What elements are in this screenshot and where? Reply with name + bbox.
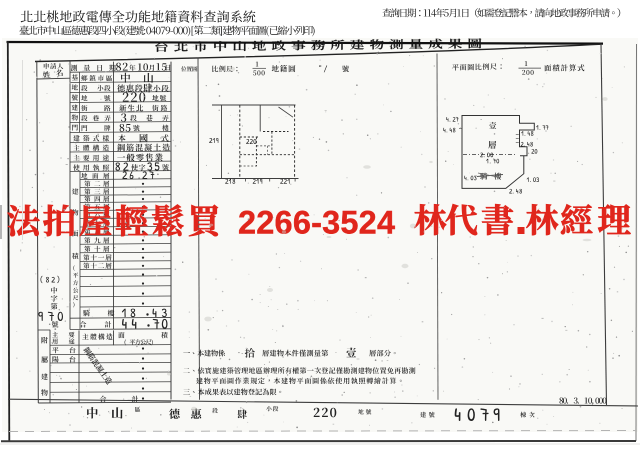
- svg-text:2266-3524: 2266-3524: [238, 205, 395, 241]
